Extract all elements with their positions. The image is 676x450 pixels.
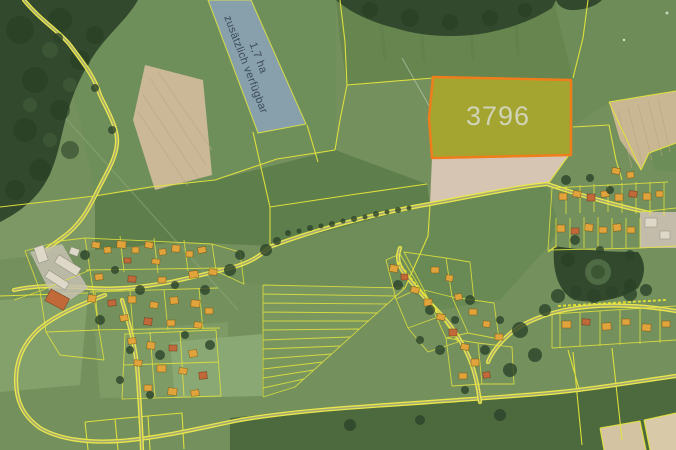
aerial-map[interactable]: 1,7 ha zusätzlich verfügbar 3796	[0, 0, 676, 450]
parcel-3796-label: 3796	[466, 101, 530, 131]
farmyard	[640, 212, 676, 248]
parcel-3796[interactable]: 3796	[429, 77, 571, 158]
